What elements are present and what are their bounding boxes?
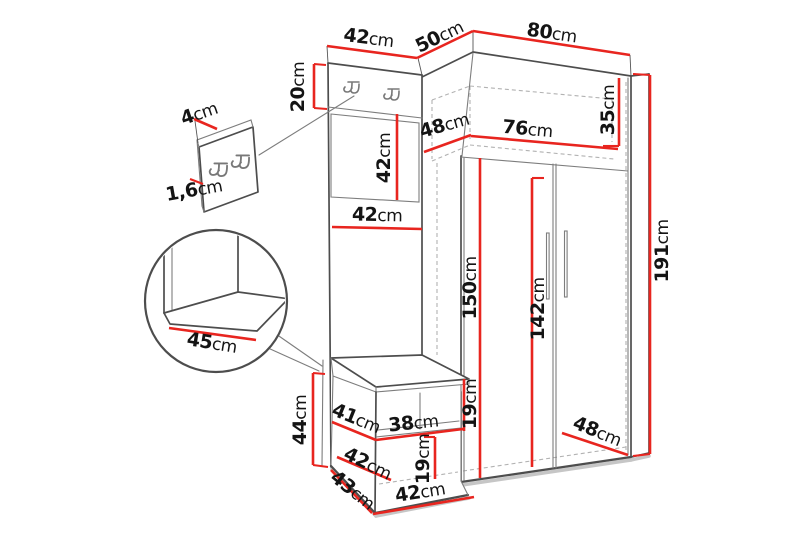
circle-leader-bottom <box>268 348 319 371</box>
dim-top50: 50cm <box>412 16 473 58</box>
dim-bench19a: 19cm <box>459 379 481 431</box>
dim-label: 19cm <box>412 434 434 484</box>
dim-label: 35cm <box>597 85 619 135</box>
dim-label: 42cm <box>373 133 395 183</box>
dim-inner35: 35cm <box>597 78 619 146</box>
dim-label: 44cm <box>289 395 311 445</box>
dim-label: 150cm <box>459 256 481 319</box>
dim-top42: 42cm <box>327 24 417 58</box>
dim-band20: 20cm <box>287 62 327 112</box>
dim-top80: 80cm <box>473 19 630 55</box>
ext-line <box>418 58 422 75</box>
dim-label: 20cm <box>287 62 309 112</box>
dim-label: 191cm <box>651 219 673 282</box>
circle-leader-top <box>276 334 322 366</box>
dim-bench19b: 19cm <box>412 434 435 484</box>
ext-line <box>327 46 328 63</box>
furniture-dimension-diagram: 42cm 50cm 80cm 20cm 4cm 1,6cm 42cm <box>0 0 800 533</box>
panel-left-side-edge <box>322 360 323 466</box>
dim-label: 80cm <box>525 19 578 48</box>
dim-label: 42cm <box>352 204 403 227</box>
dim-inset4: 4cm <box>178 97 221 130</box>
dim-label: 4cm <box>178 97 221 130</box>
dim-label: 50cm <box>412 16 467 58</box>
diagram-svg: 42cm 50cm 80cm 20cm 4cm 1,6cm 42cm <box>0 0 800 533</box>
dim-label: 19cm <box>459 379 481 429</box>
ext-line <box>630 55 631 76</box>
bench-front-left-edge <box>375 392 376 513</box>
dim-label: 142cm <box>527 277 549 340</box>
